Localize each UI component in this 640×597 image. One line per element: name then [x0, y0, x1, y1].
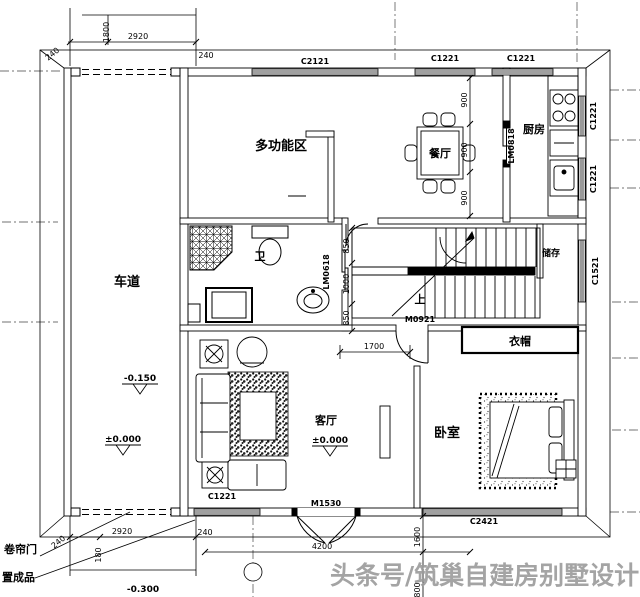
stair-treads-lower [425, 276, 535, 318]
window-c1521-right [579, 240, 585, 302]
room-label-multifunction: 多功能区 [255, 138, 307, 154]
sofa-2seat [228, 460, 286, 490]
living-furniture [196, 337, 390, 490]
watermark: 头条号/筑巢自建房别墅设计 [330, 561, 639, 590]
elevation-outside: -0.300 [127, 585, 159, 595]
elevation-living: ±0.000 [312, 436, 348, 446]
washbasin [297, 287, 329, 313]
armchair [237, 337, 267, 367]
window-c1221-right-b [579, 158, 585, 200]
dim-top-1800: 1800 [102, 22, 111, 42]
dim-stair-850b: 850 [342, 310, 351, 325]
kitchen-fixtures [548, 76, 578, 216]
dim-dining-900c: 900 [460, 190, 469, 205]
door-label-lm0618: LM0618 [322, 254, 331, 290]
stove [550, 90, 578, 126]
bathroom-fixtures [188, 226, 329, 322]
note-product: 置成品 [2, 570, 35, 584]
elev-drive-upper [122, 384, 158, 394]
dim-bottom-2920: 2920 [112, 527, 132, 536]
stair-treads-upper [436, 228, 536, 267]
dim-dining-900b: 900 [460, 142, 469, 157]
tv-cabinet [380, 406, 390, 458]
dim-bottom-180: 180 [94, 547, 103, 562]
dim-stair-1000: 1000 [342, 274, 351, 294]
elev-drive-lower [105, 445, 141, 455]
dim-bottom-1600: 1600 [413, 527, 422, 547]
room-label-kitchen: 厨房 [523, 122, 545, 136]
window-label-c1221-top-a: C1221 [431, 54, 460, 63]
door-label-m0921: M0921 [405, 315, 436, 324]
window-label-c1521-right: C1521 [591, 257, 600, 286]
dim-top-240l: 240 [44, 46, 61, 63]
window-c1221-top-b [492, 69, 553, 75]
elevation-drive-lower: ±0.000 [105, 435, 141, 445]
sofa-3seat [196, 374, 230, 462]
entry-door-m1530 [292, 508, 360, 543]
window-label-c1221-top-b: C1221 [507, 54, 536, 63]
dim-dining-900a: 900 [460, 92, 469, 107]
dim-top-240r: 240 [198, 51, 213, 60]
stairs-up-label: 上 [415, 292, 426, 306]
floor-plan-drawing: 车道 多功能区 餐厅 厨房 卫 储存 上 衣帽 客厅 卧室 C2121 C122… [0, 0, 640, 597]
dim-top-2920: 2920 [128, 32, 148, 41]
shower [190, 226, 232, 270]
hall-door-m0921 [396, 331, 428, 363]
window-label-c2421: C2421 [470, 517, 499, 526]
window-label-c1221-bottom: C1221 [208, 492, 237, 501]
end-table-b [202, 462, 228, 488]
bath-shelf [188, 304, 200, 322]
dim-bottom-4200: 4200 [312, 542, 332, 551]
window-label-c2121: C2121 [301, 57, 330, 66]
elevation-drive-upper: -0.150 [124, 374, 156, 384]
window-label-c1221-right-b: C1221 [589, 165, 598, 194]
room-label-cloakroom: 衣帽 [509, 334, 531, 348]
note-shutter-door: 卷帘门 [3, 542, 37, 556]
elev-living [312, 446, 348, 456]
window-c2421-bottom [422, 509, 562, 515]
room-label-bedroom: 卧室 [434, 425, 460, 441]
bath-cabinet [206, 288, 252, 322]
window-c1221-bottom [194, 509, 260, 515]
axis-bubble [244, 563, 262, 581]
cabinet [550, 130, 578, 156]
dim-bottom-240r: 240 [197, 528, 212, 537]
window-label-c1221-right-a: C1221 [589, 102, 598, 131]
window-c2121 [252, 69, 378, 75]
window-c1221-top-a [415, 69, 475, 75]
dim-stair-850a: 850 [342, 238, 351, 253]
room-label-living: 客厅 [314, 413, 337, 427]
dim-hall-1700: 1700 [364, 342, 384, 351]
door-label-m1530: M1530 [311, 499, 342, 508]
dim-bottom-240l: 240 [50, 534, 67, 551]
room-label-driveway: 车道 [114, 274, 140, 290]
floor-plan-page: 车道 多功能区 餐厅 厨房 卫 储存 上 衣帽 客厅 卧室 C2121 C122… [0, 0, 640, 597]
door-label-lm0818: LM0818 [507, 128, 516, 164]
room-label-bath: 卫 [255, 250, 266, 263]
sink [550, 160, 578, 196]
stair-direction-line [392, 238, 474, 316]
room-label-dining: 餐厅 [428, 146, 451, 160]
room-label-storage: 储存 [542, 247, 560, 259]
stair-landing-bar [408, 267, 535, 275]
coffee-table [240, 392, 276, 440]
staircase [352, 228, 540, 318]
window-c1221-right-a [579, 96, 585, 136]
nightstand [556, 460, 576, 478]
bedroom-furniture [480, 394, 576, 488]
stair-curve [440, 237, 466, 263]
end-table-a [200, 340, 228, 368]
